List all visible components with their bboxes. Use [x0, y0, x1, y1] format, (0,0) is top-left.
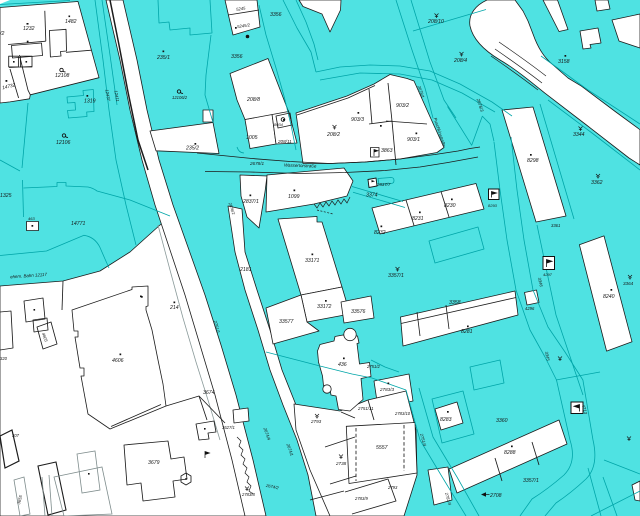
svg-text:8288: 8288 — [504, 450, 516, 456]
svg-text:12108: 12108 — [55, 73, 70, 79]
svg-text:3362: 3362 — [591, 180, 603, 186]
svg-text:1005: 1005 — [246, 135, 258, 141]
svg-text:208/8: 208/8 — [246, 97, 260, 103]
svg-text:3356: 3356 — [270, 12, 282, 18]
svg-text:3674: 3674 — [203, 390, 215, 396]
svg-text:1319: 1319 — [84, 99, 96, 105]
svg-text:3361: 3361 — [551, 223, 560, 228]
svg-text:3360: 3360 — [496, 418, 508, 424]
svg-text:2793: 2793 — [310, 419, 322, 424]
svg-text:208/10: 208/10 — [427, 19, 444, 25]
svg-text:2751/2: 2751/2 — [366, 364, 380, 369]
svg-text:235/1: 235/1 — [156, 55, 170, 61]
svg-text:2783/9: 2783/9 — [354, 496, 368, 501]
svg-text:33172: 33172 — [317, 304, 332, 310]
svg-text:2783/10: 2783/10 — [394, 411, 411, 416]
svg-text:12106: 12106 — [56, 140, 71, 146]
svg-text:903/1: 903/1 — [407, 137, 420, 143]
svg-text:903/3: 903/3 — [351, 117, 364, 123]
svg-text:1099: 1099 — [288, 194, 300, 200]
svg-text:8281: 8281 — [461, 329, 473, 335]
svg-text:208/4: 208/4 — [453, 58, 467, 64]
svg-text:2708: 2708 — [489, 493, 502, 499]
svg-text:2678/1: 2678/1 — [249, 161, 264, 166]
svg-text:3357/1: 3357/1 — [388, 273, 404, 279]
svg-text:214: 214 — [169, 305, 179, 311]
svg-text:5557: 5557 — [376, 445, 389, 451]
svg-text:2783/3: 2783/3 — [379, 387, 394, 392]
svg-text:2837/7: 2837/7 — [376, 182, 391, 187]
svg-text:33577: 33577 — [279, 319, 295, 325]
svg-text:3627/1: 3627/1 — [222, 425, 235, 430]
svg-text:14771: 14771 — [71, 221, 86, 227]
svg-text:8293: 8293 — [488, 203, 498, 208]
svg-text:436: 436 — [338, 362, 347, 368]
svg-text:2181: 2181 — [239, 267, 252, 273]
svg-text:8298: 8298 — [527, 158, 539, 164]
svg-text:4296: 4296 — [525, 306, 535, 311]
svg-text:2738: 2738 — [335, 461, 347, 466]
svg-text:3356: 3356 — [231, 54, 243, 60]
svg-text:3679: 3679 — [148, 460, 160, 466]
svg-text:1482: 1482 — [65, 19, 77, 25]
svg-text:1232: 1232 — [23, 26, 35, 32]
svg-text:8232: 8232 — [374, 230, 386, 236]
svg-text:8283: 8283 — [440, 417, 452, 423]
svg-text:903/2: 903/2 — [396, 103, 409, 109]
svg-text:3358: 3358 — [449, 300, 461, 306]
svg-text:33171: 33171 — [305, 258, 320, 264]
svg-text:208/11: 208/11 — [277, 139, 292, 144]
svg-text:3863: 3863 — [381, 148, 393, 154]
svg-text:12106/2: 12106/2 — [172, 95, 188, 100]
svg-text:3158: 3158 — [558, 59, 570, 65]
svg-text:3344: 3344 — [573, 132, 585, 138]
svg-text:8034: 8034 — [274, 122, 284, 127]
svg-text:1325: 1325 — [0, 193, 12, 199]
svg-text:2751/11: 2751/11 — [357, 406, 374, 411]
svg-text:4606: 4606 — [112, 358, 124, 364]
svg-text:4297: 4297 — [543, 272, 553, 277]
svg-text:235/2: 235/2 — [185, 146, 199, 152]
svg-text:307: 307 — [12, 433, 20, 438]
svg-text:8230: 8230 — [444, 203, 456, 209]
svg-text:8231: 8231 — [412, 216, 424, 222]
svg-text:8240: 8240 — [603, 294, 615, 300]
svg-text:/2: /2 — [0, 31, 4, 37]
svg-text:208/2: 208/2 — [326, 132, 340, 138]
svg-text:3364: 3364 — [623, 281, 634, 286]
svg-text:3374: 3374 — [366, 193, 378, 199]
svg-text:33576: 33576 — [351, 309, 366, 315]
svg-text:320: 320 — [0, 356, 8, 361]
svg-text:2783/8: 2783/8 — [241, 492, 255, 497]
svg-text:3357/1: 3357/1 — [523, 478, 539, 484]
svg-text:2793: 2793 — [387, 485, 398, 490]
svg-text:2837/1: 2837/1 — [242, 199, 259, 205]
svg-text:463: 463 — [28, 216, 35, 221]
